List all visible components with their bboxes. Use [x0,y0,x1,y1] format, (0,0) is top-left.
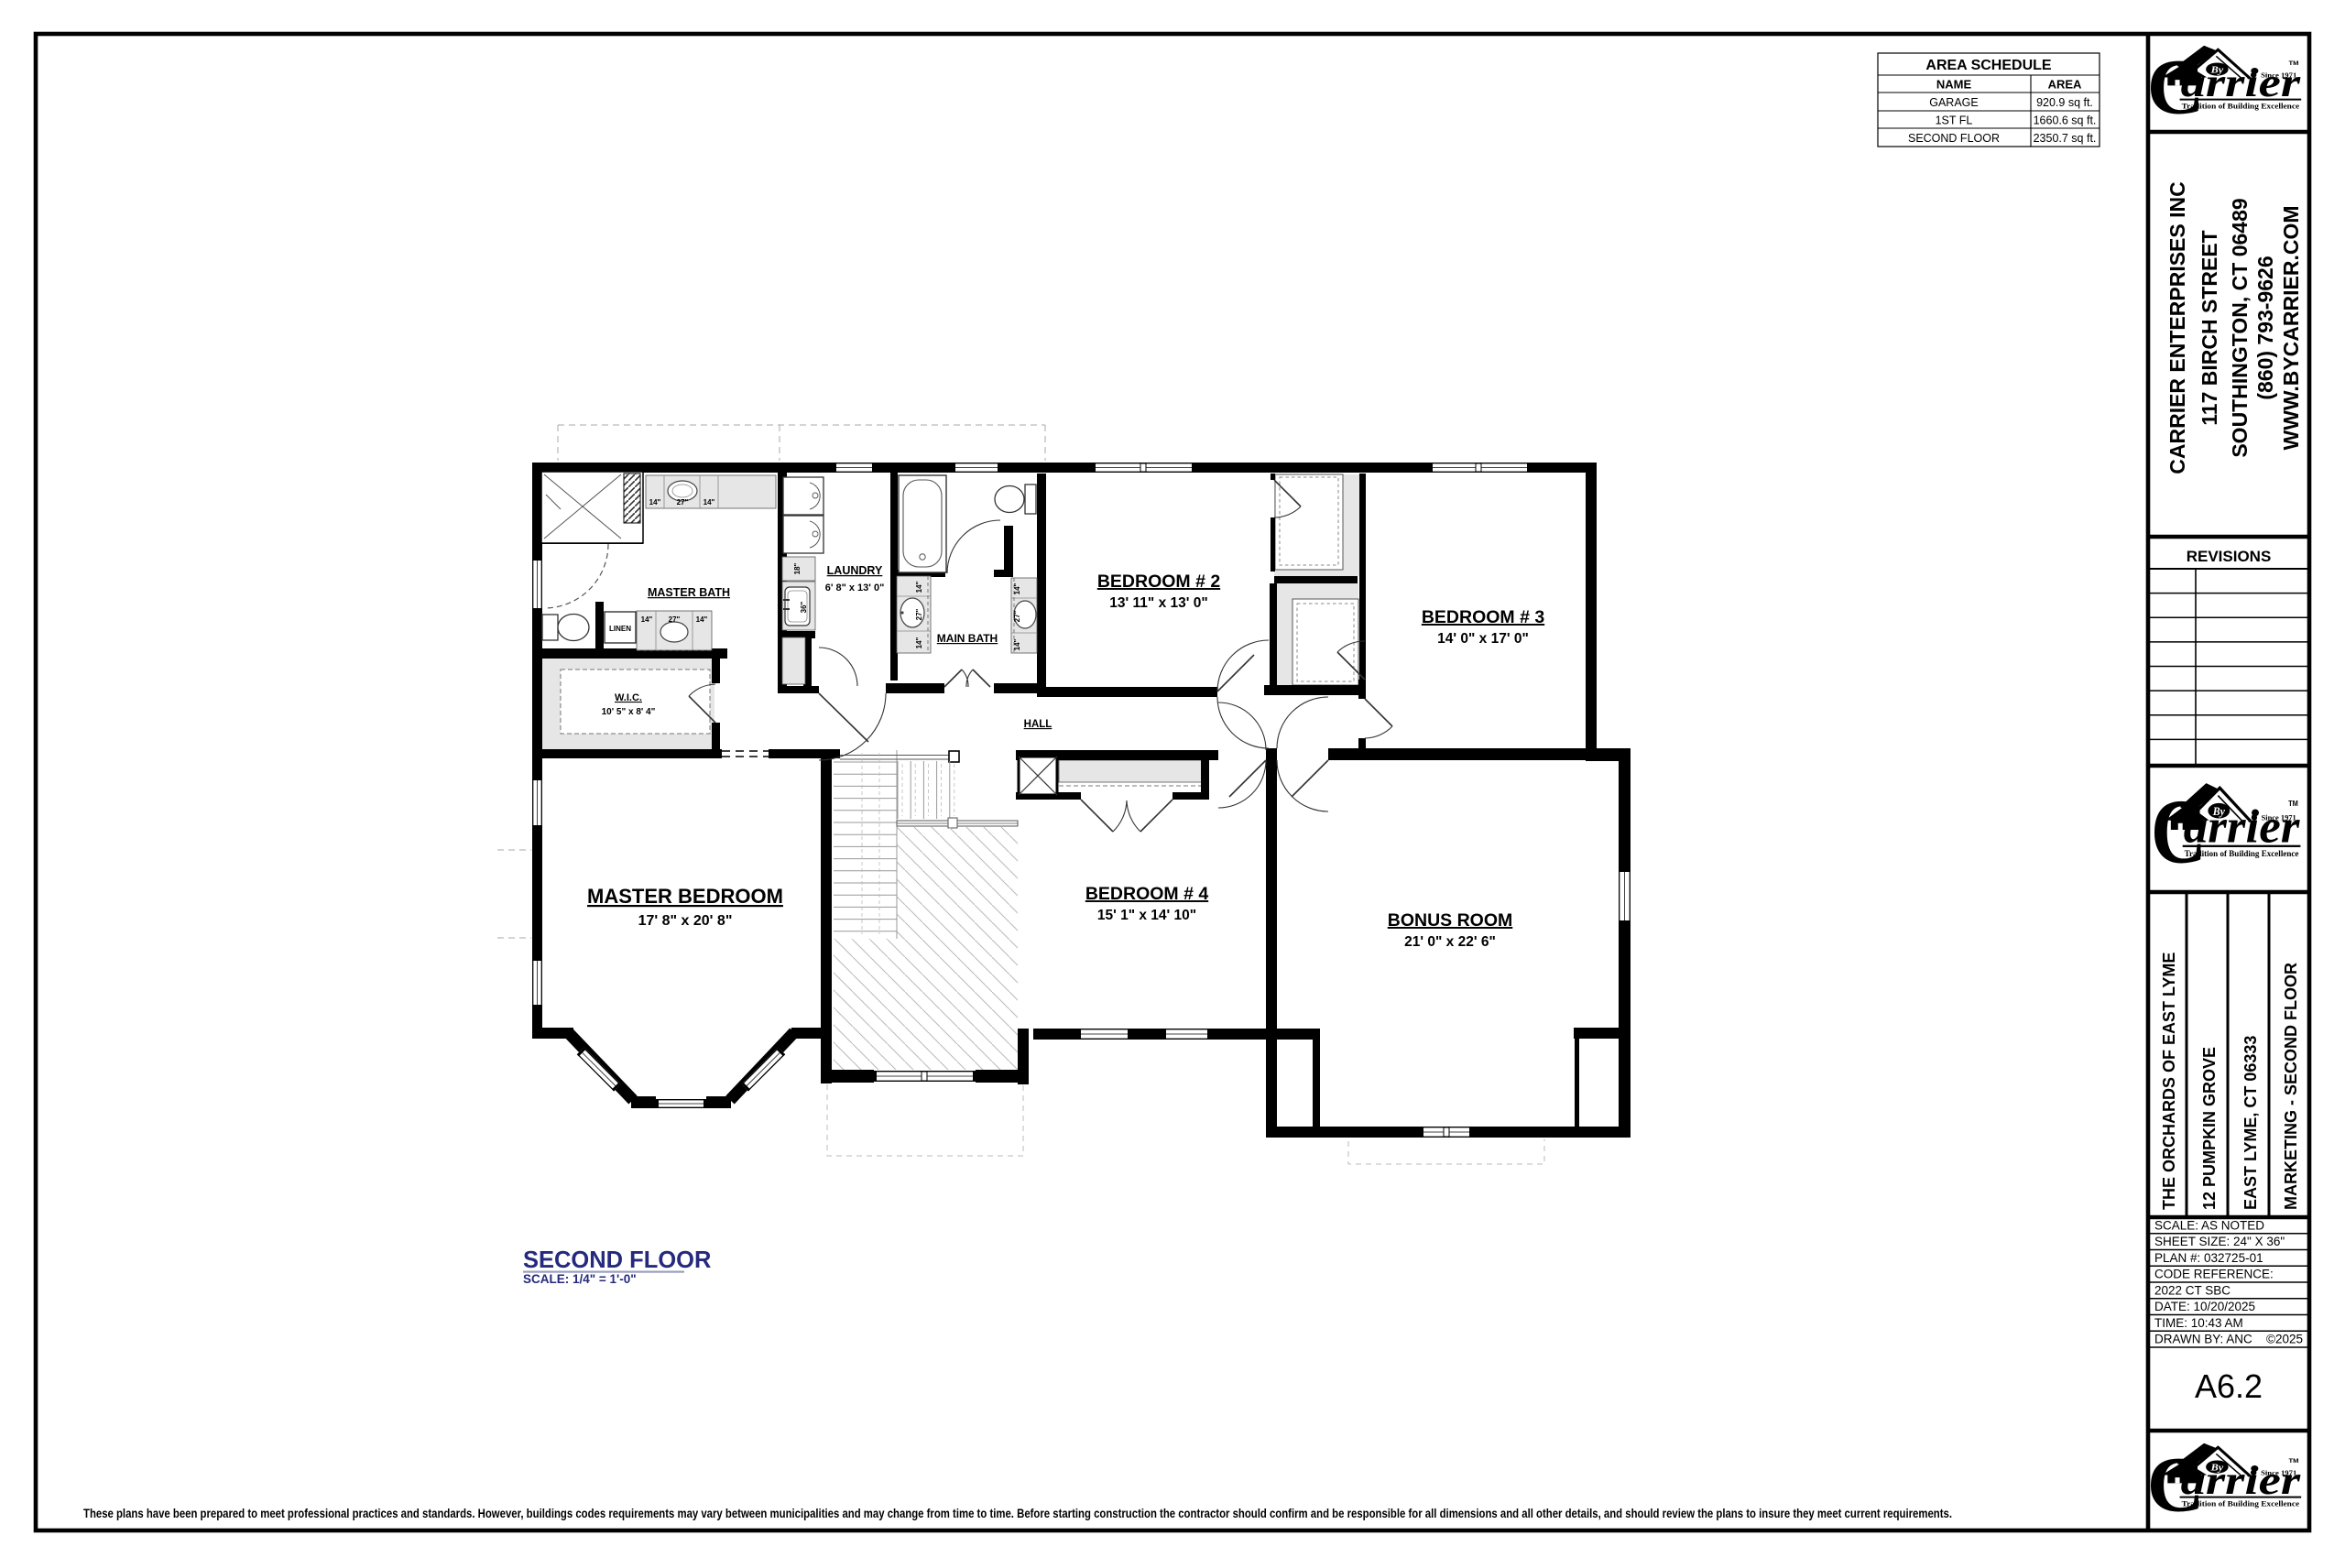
svg-text:10' 5" x 8' 4": 10' 5" x 8' 4" [602,707,656,717]
svg-text:21' 0" x 22' 6": 21' 0" x 22' 6" [1404,934,1496,950]
svg-text:14": 14" [696,615,708,624]
svg-text:BEDROOM # 3: BEDROOM # 3 [1422,607,1545,627]
svg-text:DATE: 10/20/2025: DATE: 10/20/2025 [2154,1300,2255,1313]
svg-text:18": 18" [793,562,802,574]
svg-text:14' 0" x 17' 0": 14' 0" x 17' 0" [1437,631,1529,647]
svg-text:(860) 793-9626: (860) 793-9626 [2253,256,2277,399]
svg-text:MARKETING - SECOND FLOOR: MARKETING - SECOND FLOOR [2282,963,2300,1210]
svg-text:REVISIONS: REVISIONS [2187,548,2272,565]
svg-text:1660.6 sq ft.: 1660.6 sq ft. [2034,114,2097,127]
svg-text:SECOND FLOOR: SECOND FLOOR [523,1247,711,1273]
svg-text:These plans have been prepared: These plans have been prepared to meet p… [83,1507,1952,1520]
svg-text:PLAN #: 032725-01: PLAN #: 032725-01 [2154,1251,2263,1265]
svg-text:117 BIRCH STREET: 117 BIRCH STREET [2198,230,2221,425]
svg-text:WWW.BYCARRIER.COM: WWW.BYCARRIER.COM [2279,205,2303,450]
svg-text:2022 CT SBC: 2022 CT SBC [2154,1283,2230,1297]
svg-text:GARAGE: GARAGE [1929,96,1979,109]
svg-text:©2025: ©2025 [2266,1333,2303,1346]
svg-text:TIME: 10:43 AM: TIME: 10:43 AM [2154,1316,2243,1330]
svg-text:12 PUMPKIN GROVE: 12 PUMPKIN GROVE [2200,1047,2219,1210]
svg-text:14": 14" [915,581,923,593]
svg-text:6' 8" x 13' 0": 6' 8" x 13' 0" [825,583,885,593]
svg-text:17' 8" x 20' 8": 17' 8" x 20' 8" [638,913,733,929]
svg-text:HALL: HALL [1024,719,1053,730]
svg-text:14": 14" [641,615,653,624]
svg-text:CODE REFERENCE:: CODE REFERENCE: [2154,1268,2274,1281]
svg-text:2350.7 sq ft.: 2350.7 sq ft. [2034,132,2097,145]
svg-text:A6.2: A6.2 [2195,1367,2263,1405]
svg-text:SCALE: AS NOTED: SCALE: AS NOTED [2154,1218,2264,1232]
svg-text:AREA: AREA [2048,78,2082,92]
svg-text:MASTER BATH: MASTER BATH [648,586,730,599]
svg-text:920.9 sq ft.: 920.9 sq ft. [2036,96,2093,109]
svg-text:NAME: NAME [1936,78,1972,92]
svg-text:14": 14" [1013,583,1021,594]
svg-text:14": 14" [1013,638,1021,650]
svg-text:BEDROOM # 2: BEDROOM # 2 [1097,572,1221,592]
svg-text:LAUNDRY: LAUNDRY [827,564,883,577]
svg-text:27": 27" [915,608,923,620]
svg-text:14": 14" [915,637,923,648]
svg-text:W.I.C.: W.I.C. [615,692,642,703]
svg-text:27": 27" [1013,610,1021,622]
svg-text:BONUS ROOM: BONUS ROOM [1388,910,1513,931]
svg-text:BEDROOM # 4: BEDROOM # 4 [1085,884,1209,904]
svg-text:AREA SCHEDULE: AREA SCHEDULE [1925,58,2052,73]
svg-text:MASTER BEDROOM: MASTER BEDROOM [587,885,783,908]
svg-text:14": 14" [703,498,715,506]
svg-text:DRAWN BY: ANC: DRAWN BY: ANC [2154,1333,2252,1346]
svg-text:15' 1" x 14' 10": 15' 1" x 14' 10" [1097,908,1196,923]
svg-text:SCALE: 1/4" = 1'-0": SCALE: 1/4" = 1'-0" [523,1272,637,1286]
svg-text:27": 27" [677,498,689,506]
svg-text:THE ORCHARDS OF EAST LYME: THE ORCHARDS OF EAST LYME [2160,953,2178,1210]
svg-text:SECOND FLOOR: SECOND FLOOR [1908,132,2000,145]
svg-text:14": 14" [649,498,661,506]
svg-text:36": 36" [800,601,808,613]
svg-text:CARRIER ENTERPRISES INC: CARRIER ENTERPRISES INC [2165,181,2189,474]
svg-text:MAIN BATH: MAIN BATH [937,632,998,645]
svg-text:SOUTHINGTON, CT 06489: SOUTHINGTON, CT 06489 [2228,198,2252,457]
svg-text:27": 27" [669,615,681,624]
svg-text:EAST LYME, CT 06333: EAST LYME, CT 06333 [2241,1036,2260,1210]
svg-text:LINEN: LINEN [609,625,631,633]
svg-text:1ST FL: 1ST FL [1936,114,1973,127]
svg-text:SHEET SIZE: 24" X 36": SHEET SIZE: 24" X 36" [2154,1235,2285,1248]
svg-text:13' 11" x 13' 0": 13' 11" x 13' 0" [1109,595,1207,611]
